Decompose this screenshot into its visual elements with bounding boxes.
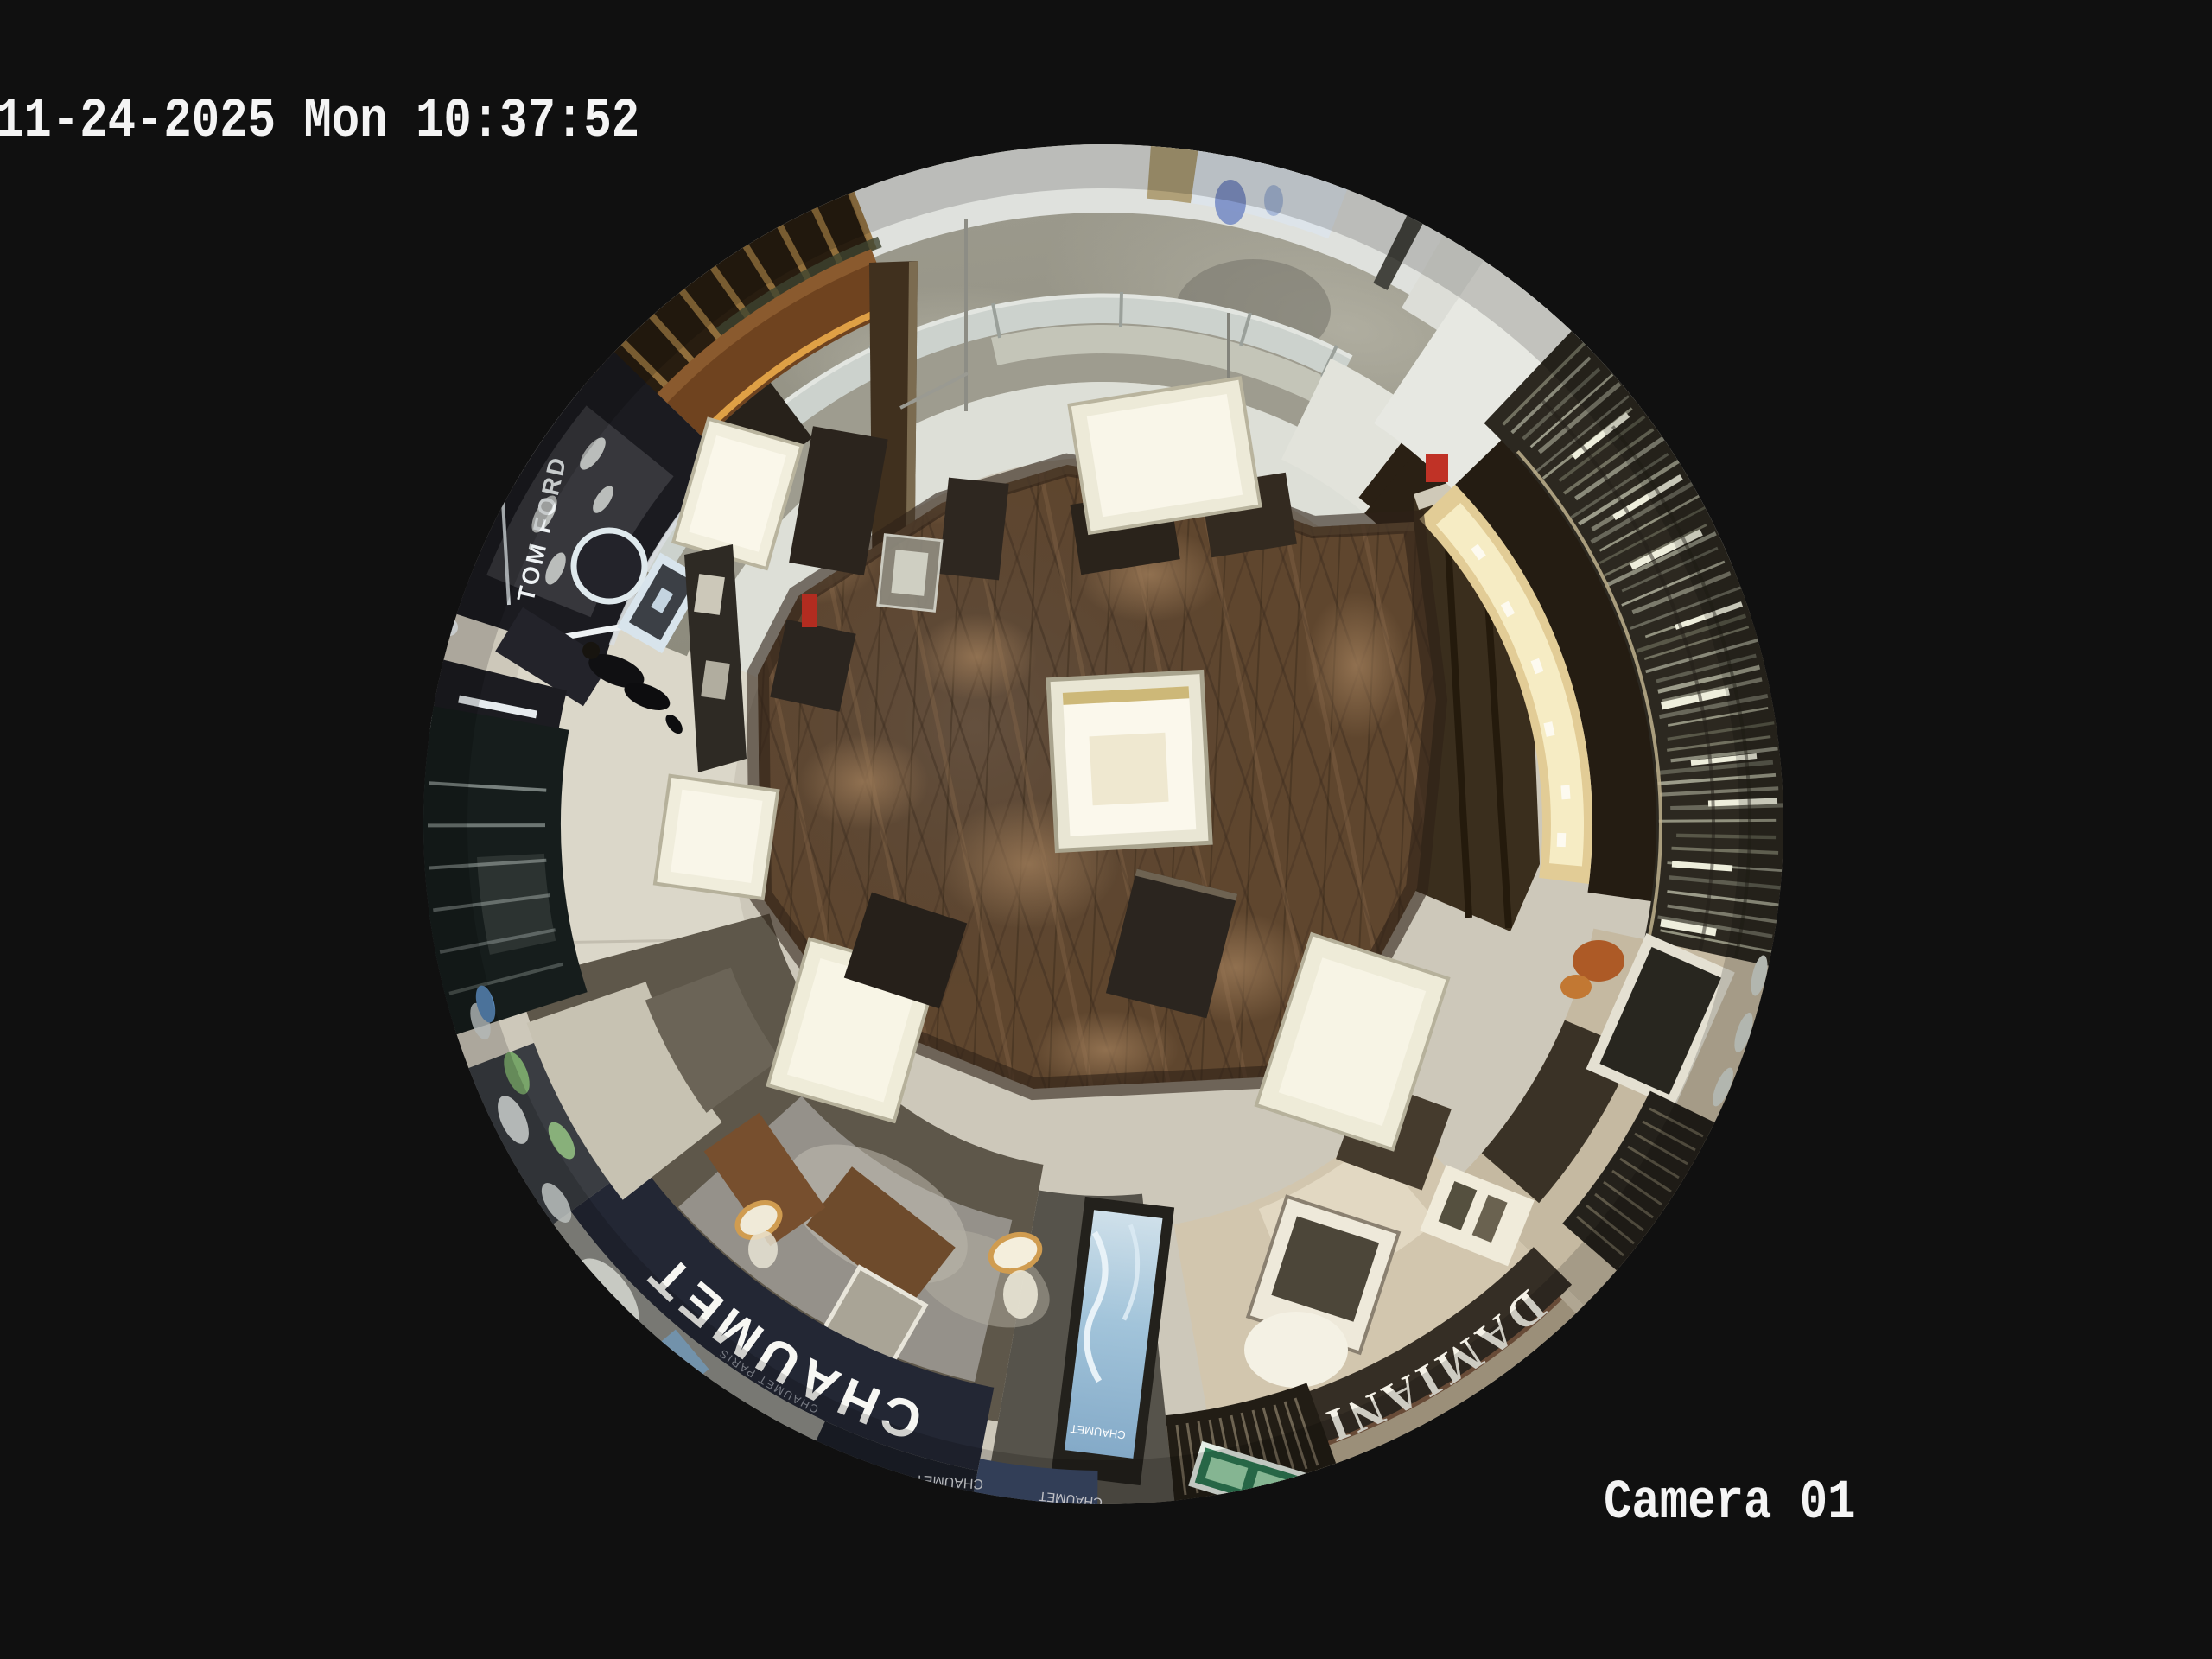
svg-text:Camera 01: Camera 01 (1604, 1471, 1856, 1534)
svg-text:11-24-2025 Mon 10:37:52: 11-24-2025 Mon 10:37:52 (0, 90, 639, 152)
